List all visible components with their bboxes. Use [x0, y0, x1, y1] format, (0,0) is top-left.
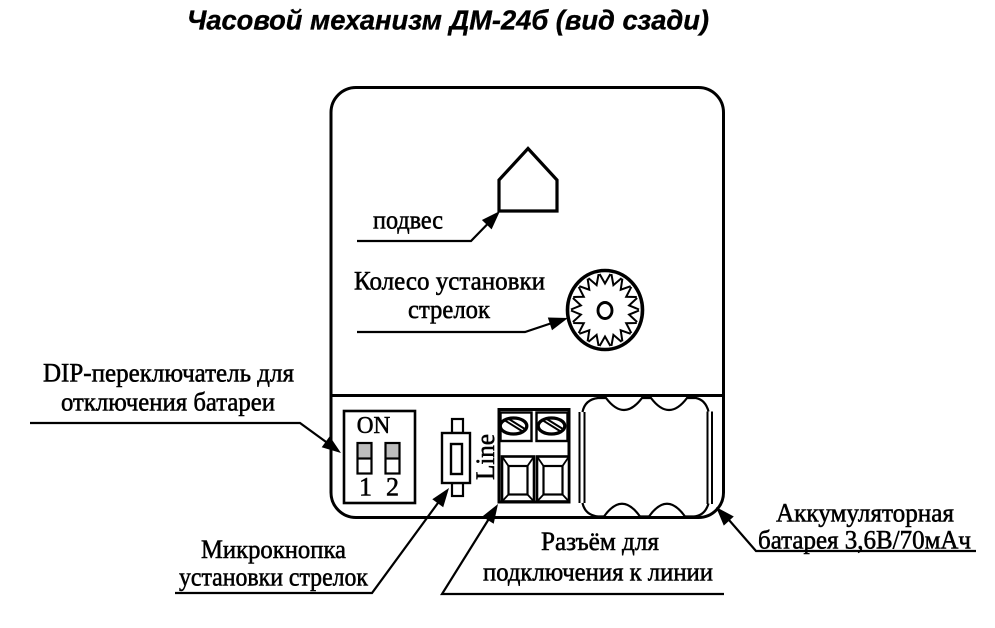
svg-text:установки стрелок: установки стрелок — [179, 563, 368, 592]
svg-text:ON: ON — [357, 413, 391, 439]
svg-text:Часовой механизм ДМ-24б (вид с: Часовой механизм ДМ-24б (вид сзади) — [187, 5, 709, 36]
svg-text:Разъём для: Разъём для — [541, 527, 659, 556]
svg-text:подвес: подвес — [373, 206, 443, 235]
svg-text:2: 2 — [386, 473, 399, 502]
svg-text:подключения к линии: подключения к линии — [483, 558, 713, 587]
svg-text:DIP-переключатель для: DIP-переключатель для — [43, 359, 294, 388]
svg-text:отключения батареи: отключения батареи — [61, 388, 275, 417]
svg-text:Микрокнопка: Микрокнопка — [201, 535, 346, 564]
svg-text:1: 1 — [359, 473, 372, 502]
svg-text:Колесо установки: Колесо установки — [354, 267, 545, 296]
svg-text:Line: Line — [471, 434, 500, 480]
svg-text:Аккумуляторная: Аккумуляторная — [776, 499, 954, 528]
svg-text:стрелок: стрелок — [408, 295, 490, 324]
